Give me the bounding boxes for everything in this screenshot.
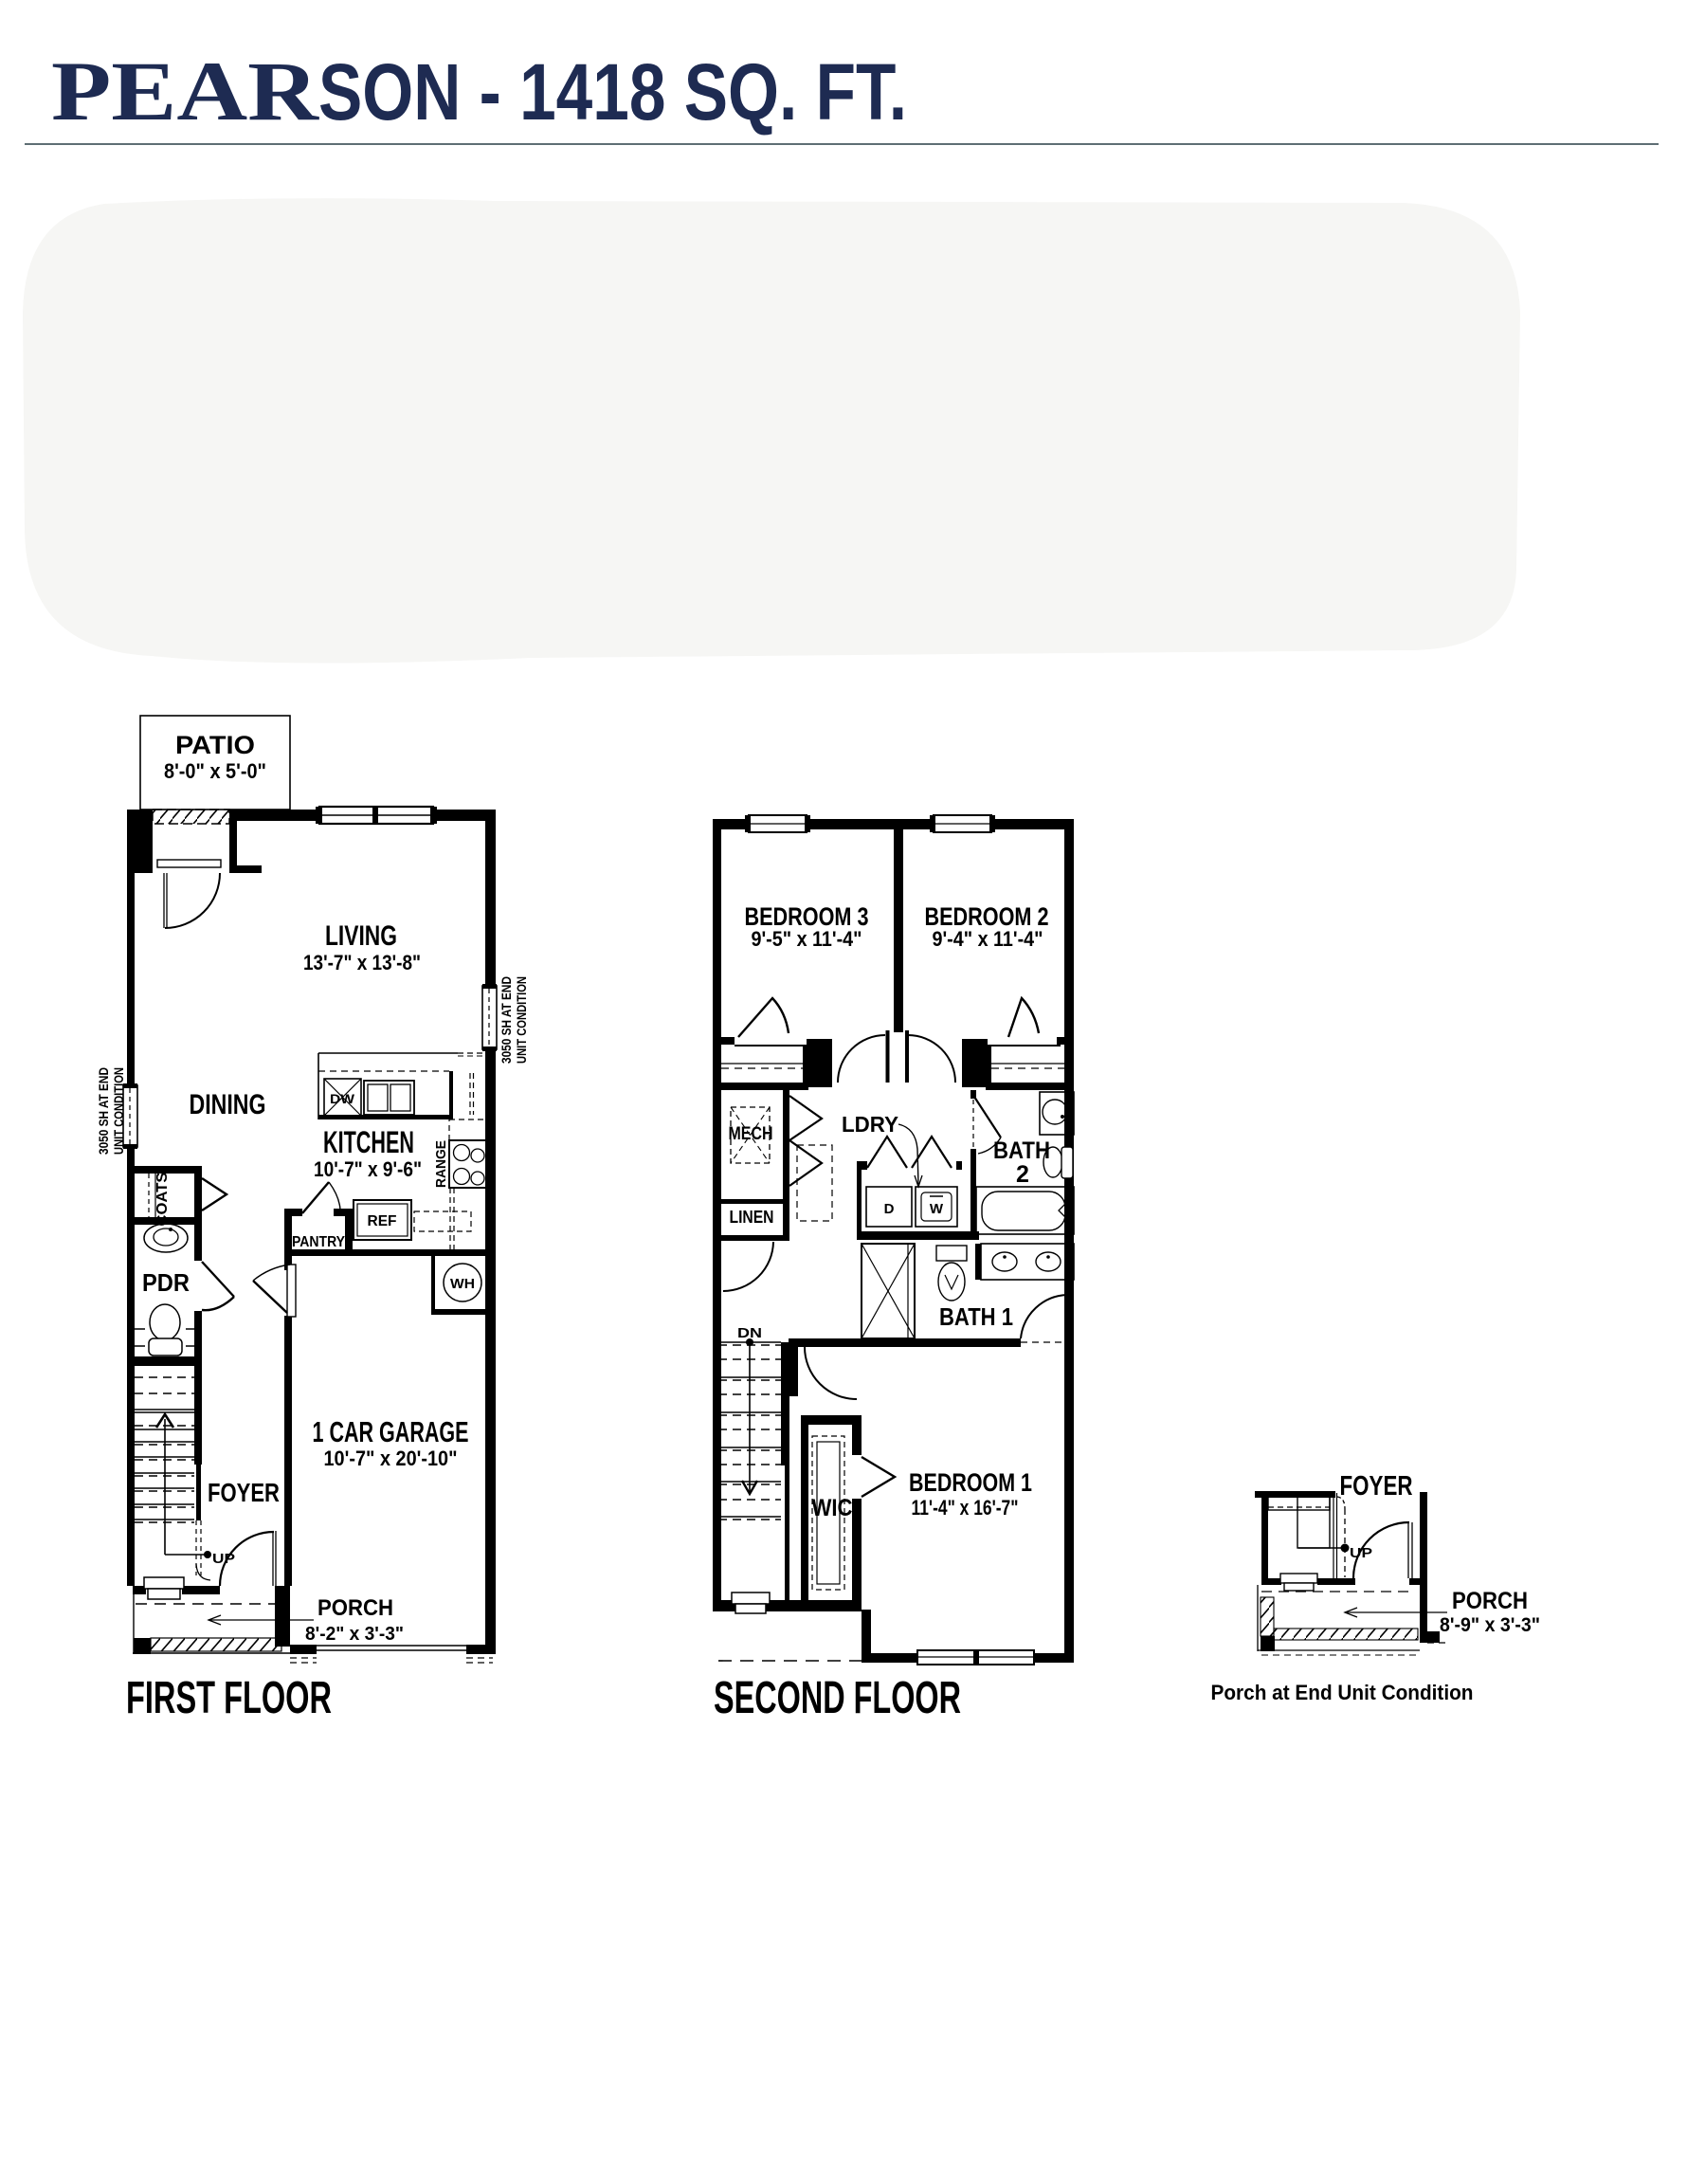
svg-text:RANGE: RANGE (433, 1140, 449, 1188)
svg-text:9'-5" x 11'-4": 9'-5" x 11'-4" (752, 927, 862, 951)
svg-text:DINING: DINING (190, 1089, 266, 1120)
svg-text:BATH 1: BATH 1 (939, 1302, 1013, 1331)
svg-text:3050 SH AT END: 3050 SH AT END (499, 976, 514, 1064)
svg-text:8'-2" x 3'-3": 8'-2" x 3'-3" (305, 1624, 404, 1645)
svg-text:1 CAR GARAGE: 1 CAR GARAGE (313, 1415, 469, 1448)
svg-text:11'-4" x 16'-7": 11'-4" x 16'-7" (912, 1496, 1019, 1520)
svg-text:LIVING: LIVING (325, 920, 397, 952)
svg-text:REF: REF (368, 1213, 397, 1229)
svg-text:UNIT CONDITION: UNIT CONDITION (514, 976, 529, 1064)
svg-text:WIC: WIC (812, 1495, 853, 1521)
svg-text:PDR: PDR (142, 1268, 190, 1297)
svg-text:BEDROOM 1: BEDROOM 1 (909, 1468, 1032, 1497)
svg-text:PORCH: PORCH (1452, 1588, 1528, 1614)
svg-text:W: W (930, 1201, 944, 1217)
svg-text:UNIT CONDITION: UNIT CONDITION (111, 1067, 126, 1155)
svg-text:BATH: BATH (993, 1137, 1050, 1164)
svg-text:2: 2 (1016, 1161, 1029, 1188)
svg-text:8'-0" x 5'-0": 8'-0" x 5'-0" (164, 759, 266, 783)
svg-text:D: D (884, 1201, 895, 1217)
svg-text:10'-7" x 20'-10": 10'-7" x 20'-10" (324, 1447, 458, 1470)
svg-text:3050 SH AT END: 3050 SH AT END (96, 1067, 111, 1155)
svg-text:FOYER: FOYER (208, 1478, 280, 1507)
svg-text:WH: WH (450, 1276, 475, 1292)
svg-text:UP: UP (1350, 1545, 1372, 1561)
svg-text:PATIO: PATIO (175, 731, 255, 759)
svg-text:SON - 1418 SQ. FT.: SON - 1418 SQ. FT. (318, 47, 907, 136)
svg-text:LINEN: LINEN (730, 1208, 774, 1227)
svg-text:FOYER: FOYER (1340, 1471, 1413, 1501)
svg-text:13'-7" x 13'-8": 13'-7" x 13'-8" (303, 951, 421, 974)
svg-text:PANTRY: PANTRY (292, 1234, 345, 1250)
svg-text:DW: DW (330, 1091, 355, 1106)
svg-text:PEAR: PEAR (51, 45, 320, 138)
svg-text:8'-9" x 3'-3": 8'-9" x 3'-3" (1440, 1614, 1540, 1636)
svg-text:9'-4" x 11'-4": 9'-4" x 11'-4" (933, 927, 1043, 951)
svg-text:LDRY: LDRY (842, 1112, 898, 1137)
svg-text:KITCHEN: KITCHEN (323, 1125, 414, 1159)
svg-text:FIRST FLOOR: FIRST FLOOR (126, 1673, 332, 1723)
svg-text:COATS: COATS (154, 1172, 171, 1226)
svg-text:SECOND FLOOR: SECOND FLOOR (714, 1673, 961, 1723)
svg-text:PORCH: PORCH (317, 1595, 393, 1621)
svg-text:MECH: MECH (729, 1124, 773, 1144)
svg-text:Porch at End Unit Condition: Porch at End Unit Condition (1211, 1681, 1474, 1704)
svg-text:10'-7" x 9'-6": 10'-7" x 9'-6" (314, 1157, 422, 1181)
